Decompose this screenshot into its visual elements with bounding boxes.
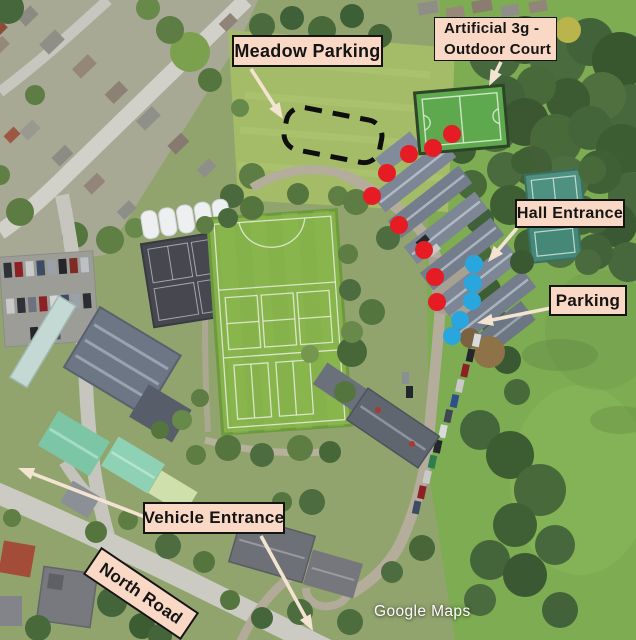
map-canvas[interactable]: Meadow Parking Artificial 3g - Outdoor C… bbox=[0, 0, 636, 640]
parking-label-text: Parking bbox=[556, 291, 620, 311]
artificial-3g-court bbox=[415, 85, 509, 154]
satellite-basemap[interactable] bbox=[0, 0, 636, 640]
meadow-parking-label-text: Meadow Parking bbox=[234, 41, 380, 62]
artificial-3g-label-line2: Outdoor Court bbox=[444, 39, 551, 60]
google-maps-attribution[interactable]: Google Maps bbox=[374, 603, 471, 621]
vehicle-entrance-label: Vehicle Entrance bbox=[143, 502, 285, 534]
artificial-3g-label: Artificial 3g - Outdoor Court bbox=[434, 17, 557, 61]
meadow-parking-label: Meadow Parking bbox=[232, 35, 383, 67]
sports-pitch bbox=[208, 210, 352, 434]
parking-label: Parking bbox=[549, 285, 627, 316]
vehicle-entrance-label-text: Vehicle Entrance bbox=[144, 508, 285, 528]
artificial-3g-label-line1: Artificial 3g - bbox=[444, 18, 539, 39]
hall-entrance-label: Hall Entrance bbox=[515, 199, 625, 228]
hall-entrance-label-text: Hall Entrance bbox=[517, 205, 623, 223]
